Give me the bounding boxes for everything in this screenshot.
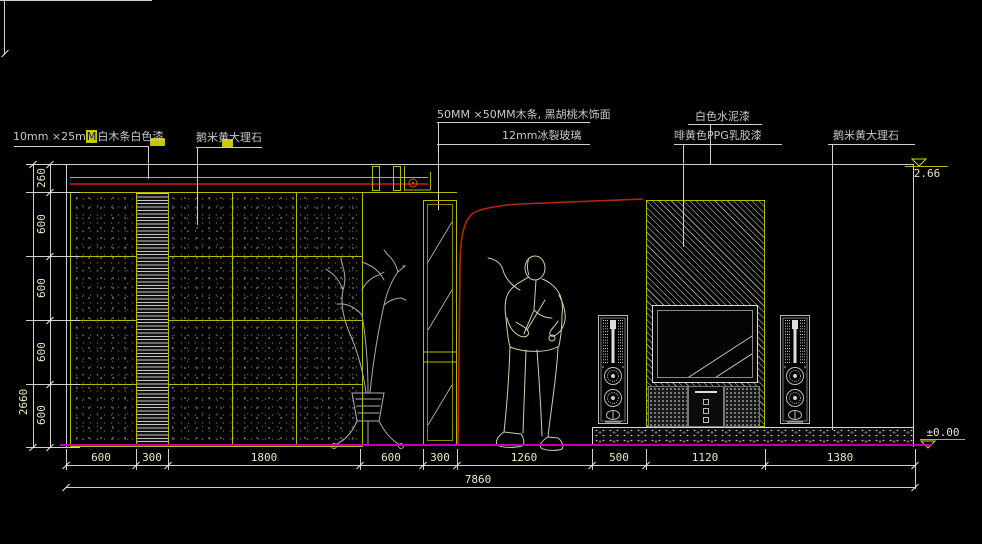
label-wood-grid: 50MM ×50MM木条, 黑胡桃木饰面	[437, 109, 611, 121]
label-wood-strip: 10mm ×25mM白木条白色漆	[13, 131, 163, 143]
speaker-left	[599, 316, 628, 424]
level-triangle-top	[912, 159, 926, 166]
dim-left-seg: 600	[36, 395, 48, 435]
dim-left-seg: 260	[36, 158, 48, 198]
label-wood-strip-p2: 白木条白色漆	[97, 130, 163, 143]
dim-bottom-seg: 1120	[685, 452, 725, 464]
glass-panel	[424, 201, 457, 445]
dim-left-total: 2660	[18, 382, 30, 422]
dim-bottom-seg: 300	[132, 452, 172, 464]
person-figure	[488, 256, 565, 450]
label-wood-strip-p1: 10mm ×25m	[13, 130, 86, 143]
level-value-top: 2.66	[906, 168, 948, 180]
floor-line	[60, 444, 932, 446]
dim-bottom-seg: 1260	[504, 452, 544, 464]
cad-canvas: 2660 260 600 600 600 600 600 300 1800 60…	[0, 0, 982, 544]
dim-bottom-seg: 600	[81, 452, 121, 464]
label-wood-strip-highlight: M	[86, 130, 98, 143]
dim-bottom-seg: 1380	[820, 452, 860, 464]
dim-left-seg: 600	[36, 204, 48, 244]
dim-bottom-total: 7860	[458, 474, 498, 486]
downlight-center	[412, 182, 414, 184]
glass-hatch-marks	[428, 222, 452, 425]
label-cement: 白色水泥漆	[695, 111, 750, 123]
label-marble-right: 鹅米黄大理石	[833, 130, 899, 142]
label-marble-left: 鹅米黄大理石	[196, 132, 262, 144]
label-ppg: 啡黄色PPG乳胶漆	[674, 130, 762, 142]
dim-bottom-seg: 500	[599, 452, 639, 464]
label-glass: 12mm冰裂玻璃	[502, 130, 581, 142]
dim-bottom-seg: 1800	[244, 452, 284, 464]
ceiling-detail	[373, 166, 431, 191]
plant-stand	[326, 250, 406, 449]
dim-left-seg: 600	[36, 268, 48, 308]
speaker-right	[781, 316, 810, 424]
dim-bottom-seg: 300	[420, 452, 460, 464]
dim-bottom-seg: 600	[371, 452, 411, 464]
dim-left-seg: 600	[36, 332, 48, 372]
level-value-bottom: ±0.00	[922, 427, 964, 439]
